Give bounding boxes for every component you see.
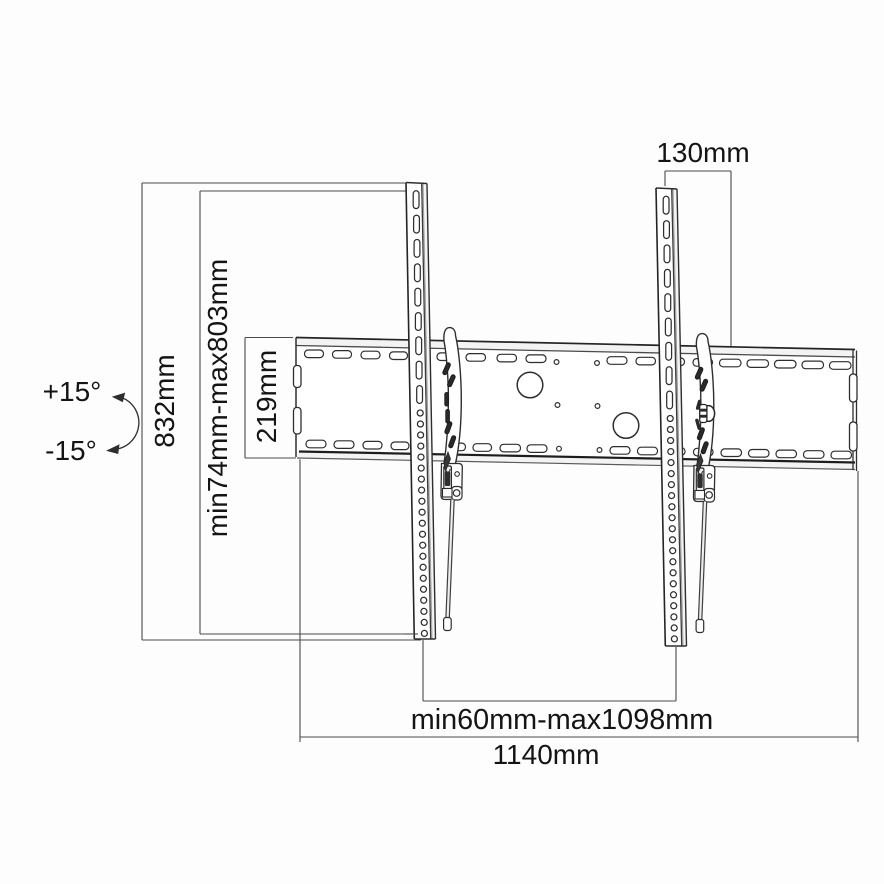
svg-text:1140mm: 1140mm: [493, 739, 600, 770]
svg-text:min60mm-max1098mm: min60mm-max1098mm: [411, 704, 713, 736]
svg-text:832mm: 832mm: [149, 354, 180, 447]
svg-text:130mm: 130mm: [656, 137, 749, 168]
svg-text:+15°: +15°: [43, 376, 102, 407]
svg-text:-15°: -15°: [45, 435, 97, 466]
svg-text:219mm: 219mm: [251, 350, 282, 443]
svg-text:min74mm-max803mm: min74mm-max803mm: [202, 259, 233, 538]
